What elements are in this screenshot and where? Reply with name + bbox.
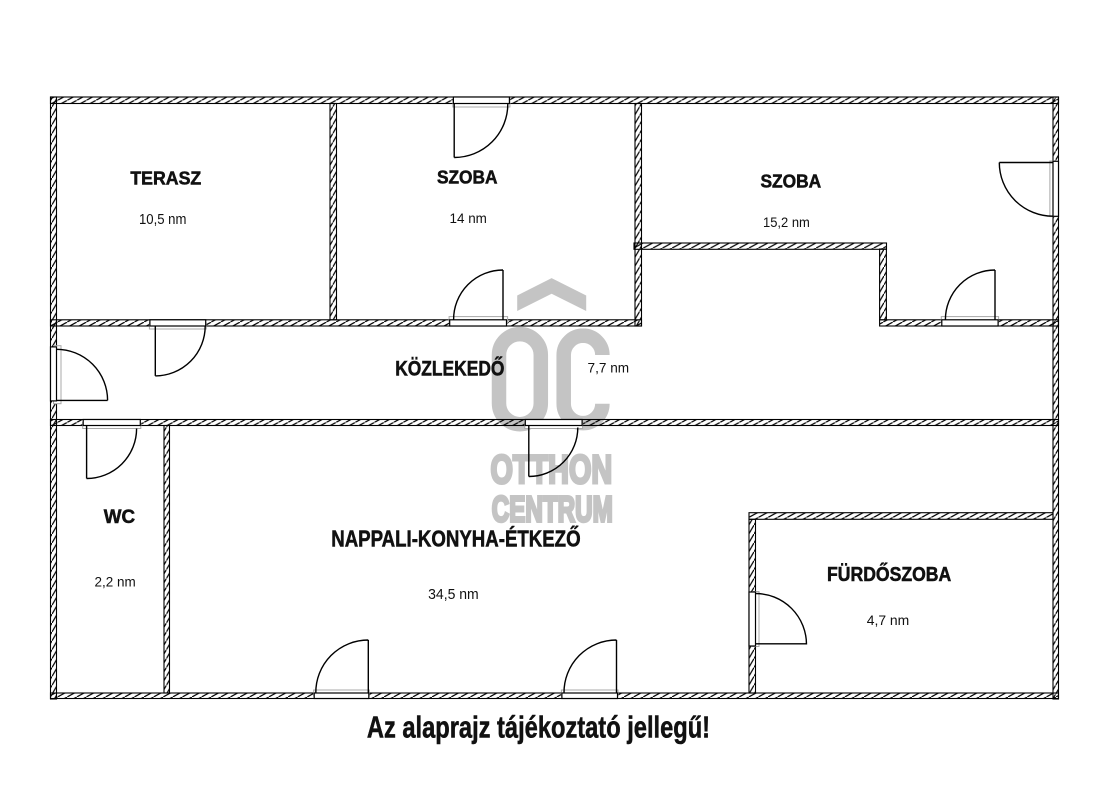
svg-text:SZOBA: SZOBA [760,171,821,192]
svg-text:34,5 nm: 34,5 nm [428,587,479,603]
svg-text:Az alaprajz tájékoztató jelleg: Az alaprajz tájékoztató jellegű! [367,709,710,744]
svg-text:15,2 nm: 15,2 nm [763,215,810,230]
svg-text:4,7 nm: 4,7 nm [867,612,910,628]
svg-text:KÖZLEKEDŐ: KÖZLEKEDŐ [395,356,504,381]
svg-text:2,2 nm: 2,2 nm [95,573,136,589]
svg-text:SZOBA: SZOBA [437,167,497,188]
svg-text:FÜRDŐSZOBA: FÜRDŐSZOBA [827,563,951,586]
svg-text:7,7 nm: 7,7 nm [588,361,630,376]
svg-text:10,5 nm: 10,5 nm [139,212,186,228]
svg-text:OTTHON: OTTHON [491,447,613,492]
svg-text:TERASZ: TERASZ [130,167,201,189]
svg-text:WC: WC [104,507,135,528]
svg-text:CENTRUM: CENTRUM [492,490,613,530]
svg-text:14 nm: 14 nm [450,211,487,226]
svg-text:NAPPALI-KONYHA-ÉTKEZŐ: NAPPALI-KONYHA-ÉTKEZŐ [331,527,580,552]
